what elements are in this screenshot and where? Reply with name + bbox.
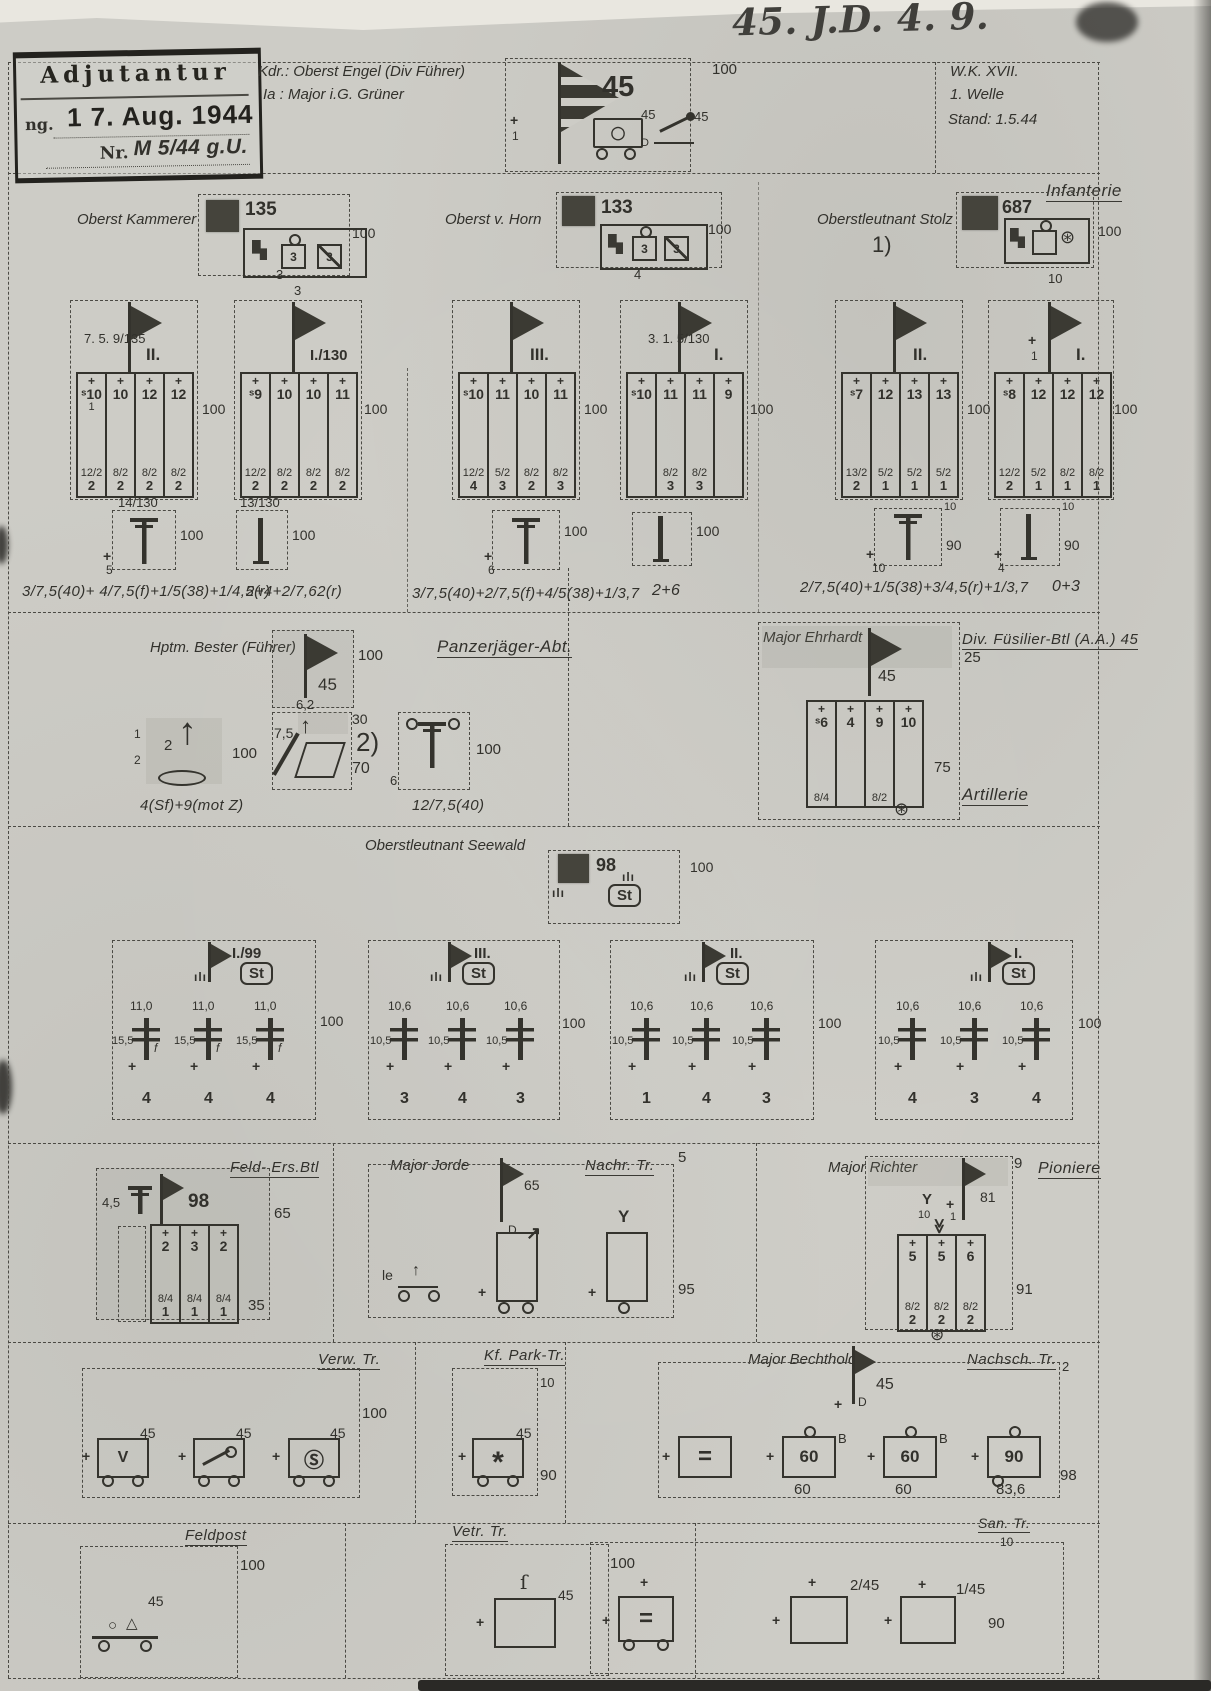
antitank-arrow-icon: ↑ <box>300 714 311 738</box>
unit-number: 81 <box>980 1190 996 1205</box>
column-top: ˢ6 <box>815 714 828 730</box>
frame-line <box>8 1678 1100 1679</box>
regiment-commander: Oberstleutnant Seewald <box>365 838 525 854</box>
column-frac: 8/2 <box>1060 468 1075 478</box>
cell-value: 3 <box>673 242 680 256</box>
cross-icon <box>499 376 506 386</box>
wagon-number: 45 <box>148 1594 164 1609</box>
cross-icon <box>866 546 874 562</box>
unit-strength: 100 <box>232 746 257 762</box>
wagon-glyph: Ⓢ <box>304 1444 324 1473</box>
cross-icon <box>557 376 564 386</box>
pennant-icon <box>855 1350 876 1374</box>
cross-icon <box>640 1574 648 1590</box>
group-strength: 100 <box>562 1016 585 1031</box>
group-title: I. <box>1014 946 1022 962</box>
cross-icon <box>444 1058 452 1074</box>
column-top: 12 <box>1031 386 1047 402</box>
unit-column: ˢ713/22 <box>843 374 870 496</box>
cross-icon <box>272 1448 280 1464</box>
staff-marks-icon <box>430 968 443 986</box>
group-title: III. <box>474 946 491 962</box>
cross-icon <box>510 112 518 128</box>
column-bottom: 3 <box>696 478 703 493</box>
unit-column: 128/22 <box>163 374 192 496</box>
cross-icon <box>310 376 317 386</box>
cross-icon <box>882 376 889 386</box>
cross-icon <box>772 1612 780 1628</box>
frame-line <box>333 1143 334 1342</box>
column-top: 13 <box>907 386 923 402</box>
gun-calibre: 10,6 <box>446 1000 469 1013</box>
gun-count: 4 <box>142 1090 151 1107</box>
artillery-gun-icon <box>448 1018 476 1060</box>
unit-column: 135/21 <box>928 374 957 496</box>
cross-icon <box>88 376 95 386</box>
gun-sub-calibre: 10,5 <box>370 1036 391 1048</box>
cross-icon <box>146 376 153 386</box>
gun-calibre: 10,6 <box>958 1000 981 1013</box>
battalion-strength: 100 <box>364 402 387 417</box>
gun-count: 3 <box>762 1090 771 1107</box>
battalion-sup-label: 7. 5. 9/135 <box>84 332 145 346</box>
veterinaer-unit-box <box>494 1598 556 1648</box>
pioniere-columns: 58/22 58/22 68/22 <box>897 1234 986 1332</box>
battalion-top-note: 3 <box>294 284 301 298</box>
wagon-glyph: V <box>118 1449 129 1467</box>
column-frac: 8/2 <box>142 468 157 478</box>
cross-icon <box>688 1058 696 1074</box>
battalion-strength: 100 <box>584 402 607 417</box>
column-bottom: 2 <box>1006 478 1013 493</box>
gun-sub-calibre: 10,5 <box>612 1036 633 1048</box>
cross-icon <box>884 1612 892 1628</box>
gun-count: 3 <box>970 1090 979 1107</box>
column-top: ˢ7 <box>850 386 863 402</box>
unit-column: 118/23 <box>545 374 574 496</box>
frame-line <box>8 1143 1100 1144</box>
column-frac: 8/2 <box>113 468 128 478</box>
column-bottom: 2 <box>88 478 95 493</box>
cross-icon <box>190 1058 198 1074</box>
gun-sub-calibre: 10,5 <box>1002 1036 1023 1048</box>
artillery-gun-icon <box>960 1018 988 1060</box>
cross-icon <box>938 1238 945 1248</box>
cross-icon <box>588 1284 596 1300</box>
cross-icon <box>994 546 1002 562</box>
truck-number: 45 <box>641 108 655 122</box>
column-frac: 8/4 <box>814 793 829 803</box>
regiment-commander: Oberstleutnant Stolz <box>817 212 953 228</box>
frame-line <box>758 182 759 612</box>
column-top: ˢ10 <box>463 386 484 402</box>
sanitaet-unit-box <box>900 1596 956 1644</box>
unit-number: 98 <box>188 1192 209 1213</box>
corner-wk: W.K. XVII. <box>950 64 1019 80</box>
weapons-annotation: 2+4+2/7,62(r) <box>246 584 342 600</box>
unit-column: 10 <box>893 702 922 806</box>
wheel-icon <box>498 1302 510 1314</box>
column-frac: 12/2 <box>999 468 1020 478</box>
support-strength: 100 <box>180 528 203 543</box>
section-title-feldpost: Feldpost <box>185 1528 247 1546</box>
supply-unit-box: 60 <box>883 1436 937 1478</box>
small-note: 10 <box>918 1210 930 1222</box>
infantry-gun-icon <box>126 518 162 564</box>
sanitaet-wagon-icon: = <box>618 1596 674 1642</box>
flag-shade <box>868 1158 1008 1186</box>
wagon-number: 45 <box>236 1426 252 1441</box>
cross-icon <box>1035 376 1042 386</box>
cross-icon <box>946 1196 954 1212</box>
column-top: 11 <box>663 386 678 402</box>
column-bottom: 2 <box>909 1312 916 1327</box>
group-strength: 100 <box>320 1014 343 1029</box>
weapons-annotation: 2+6 <box>652 582 680 599</box>
werkstatt-wagon-icon: * <box>472 1438 524 1478</box>
cross-icon <box>940 376 947 386</box>
oval-base-icon <box>158 770 206 786</box>
wheel-icon: ⊛ <box>1060 228 1075 247</box>
unit-right-note: 70 <box>352 760 370 777</box>
infantry-gun-icon <box>508 518 544 564</box>
unit-column: 128/21 <box>1081 374 1110 496</box>
cross-icon <box>191 1228 198 1238</box>
adjutantur-stamp: Adjutantur ng. 1 7. Aug. 1944 Nr. M 5/44… <box>13 48 263 184</box>
group-strength: 100 <box>1078 1016 1101 1031</box>
column-frac: 5/2 <box>907 468 922 478</box>
support-note: 6 <box>488 564 495 577</box>
unit-column: 125/21 <box>1023 374 1052 496</box>
unit-column: 58/22 <box>926 1236 955 1330</box>
frame-line <box>8 826 1100 827</box>
unit-top-note: 6,2 <box>296 698 314 712</box>
gun-count: 4 <box>702 1090 711 1107</box>
trailer-line <box>398 1286 438 1288</box>
trailer-arrow-icon: ↑ <box>412 1262 420 1279</box>
unit-column: 38/41 <box>179 1226 208 1322</box>
hook-icon: ſ <box>520 1572 527 1594</box>
fuesilier-columns: ˢ68/4 4 98/2 10 <box>806 700 924 808</box>
cross-icon <box>502 1058 510 1074</box>
scan-bottom-band <box>418 1680 1211 1691</box>
gun-sub-calibre: 10,5 <box>486 1036 507 1048</box>
staff-marks-icon <box>970 968 983 986</box>
posthorn-wagon-icon: ○ △ <box>92 1612 162 1644</box>
gun-calibre: 10,6 <box>750 1000 773 1013</box>
support-strength: 90 <box>946 538 962 553</box>
unit-strength: 75 <box>934 760 951 776</box>
gun-count: 4 <box>204 1090 213 1107</box>
column-top: ˢ8 <box>1003 386 1016 402</box>
staff-cell: 3 <box>281 244 306 269</box>
cross-icon <box>484 548 492 564</box>
unit-sup: B <box>939 1432 948 1446</box>
column-top: 12 <box>1089 386 1105 402</box>
unit-num: 2 <box>164 738 172 754</box>
group-title: I./99 <box>232 946 261 962</box>
cross-icon <box>1006 376 1013 386</box>
gun-calibre: 10,6 <box>504 1000 527 1013</box>
battalion-top-note: 1 <box>1031 350 1038 363</box>
unit-sup: B <box>838 1432 847 1446</box>
unit-label: 2/45 <box>850 1578 879 1594</box>
weapons-annotation: 3/7,5(40)+ 4/7,5(f)+1/5(38)+1/4,5(r) <box>22 584 270 600</box>
division-number: 45 <box>602 72 634 103</box>
empty-column <box>118 1226 146 1322</box>
cross-icon <box>178 1448 186 1464</box>
cross-icon <box>909 1238 916 1248</box>
column-top: 6 <box>967 1248 975 1264</box>
pennant-icon <box>871 632 902 666</box>
unit-column: 118/22 <box>327 374 356 496</box>
scan-artifact <box>0 1060 12 1114</box>
cross-icon <box>478 1284 486 1300</box>
battalion-title: I. <box>1076 346 1085 364</box>
cross-icon <box>853 376 860 386</box>
column-frac: 8/2 <box>553 468 568 478</box>
wheel-icon <box>406 718 418 730</box>
unit-number: 45 <box>876 1376 894 1393</box>
section-title-kfpark: Kf. Park-Tr. <box>484 1348 565 1366</box>
wheel-icon: ⊛ <box>930 1326 944 1344</box>
battalion-strength: 100 <box>750 402 773 417</box>
battalion-title: I. <box>714 346 723 364</box>
abteilung-number: 45 <box>318 676 337 694</box>
supply-unit-box: = <box>678 1436 732 1478</box>
column-frac: 8/2 <box>872 793 887 803</box>
artillery-gun-icon <box>898 1018 926 1060</box>
handwritten-division-note: 45. J.D. 4. 9. <box>732 0 990 43</box>
column-bottom: 2 <box>117 478 124 493</box>
unit-column: 125/21 <box>870 374 899 496</box>
gun-count: 4 <box>908 1090 917 1107</box>
column-top: 9 <box>876 714 884 730</box>
column-icon <box>1026 514 1031 560</box>
unit-left-note: 6 <box>390 774 397 788</box>
gun-calibre: 10,6 <box>896 1000 919 1013</box>
stamp-line <box>46 164 250 169</box>
column-top: 12 <box>142 386 158 402</box>
column-top: 10 <box>901 714 917 730</box>
column-bottom: 1 <box>1064 478 1071 493</box>
unit-strength: 100 <box>476 742 501 758</box>
regiment-below-note: 10 <box>1048 272 1062 286</box>
support-strength: 90 <box>1064 538 1080 553</box>
unit-column: 128/21 <box>1052 374 1081 496</box>
cross-icon <box>1093 376 1100 386</box>
column-bottom: 3 <box>499 478 506 493</box>
cross-icon <box>82 1448 90 1464</box>
unit-number: 65 <box>524 1178 540 1193</box>
regiment-number: 135 <box>245 200 277 221</box>
artillery-gun-icon <box>632 1018 660 1060</box>
pennant-icon <box>163 1176 184 1200</box>
commander-line-ia: Ia : Major i.G. Grüner <box>263 87 404 103</box>
infantry-gun-icon <box>890 514 926 560</box>
wheel-icon <box>98 1640 110 1652</box>
cross-icon <box>117 376 124 386</box>
unit-column: ˢ912/22 <box>242 374 269 496</box>
staff-cell <box>1032 230 1057 255</box>
cell-value: 3 <box>326 250 333 264</box>
cross-icon <box>748 1058 756 1074</box>
group-title: II. <box>730 946 743 962</box>
wheel-icon <box>428 1290 440 1302</box>
unit-column: 28/41 <box>208 1226 237 1322</box>
column-top: 12 <box>171 386 187 402</box>
unit-left-note: 1 <box>134 728 141 741</box>
cross-icon <box>696 376 703 386</box>
cross-icon <box>847 704 854 714</box>
infantry-gun-icon <box>414 722 450 768</box>
unit-column: 58/22 <box>899 1236 926 1330</box>
cell-value: 3 <box>641 242 648 256</box>
unit-column: 118/23 <box>655 374 684 496</box>
corner-stand: Stand: 1.5.44 <box>948 112 1037 128</box>
weapons-annotation: 4(Sf)+9(mot Z) <box>140 798 244 814</box>
battalion-title: II. <box>913 346 927 364</box>
column-top: 12 <box>878 386 894 402</box>
frame-line <box>8 1523 1100 1524</box>
gun-count: 3 <box>516 1090 525 1107</box>
unit-column: ˢ812/22 <box>996 374 1023 496</box>
frame-line <box>565 1342 566 1523</box>
artillery-gun-icon <box>752 1018 780 1060</box>
cross-icon <box>386 1058 394 1074</box>
car-baseline <box>654 142 694 144</box>
section-title-veterinaer: Vetr. Tr. <box>452 1524 508 1542</box>
torn-paper-edge <box>0 0 1211 30</box>
unit-strength: 90 <box>988 1616 1005 1632</box>
unit-strength: 98 <box>1060 1468 1077 1484</box>
regiment-flag-icon <box>558 854 589 883</box>
stamp-title: Adjutantur <box>40 60 231 88</box>
battalion-title: II. <box>146 346 160 364</box>
unit-right-note: 30 <box>352 712 368 727</box>
radio-arrow-icon: ↗ <box>526 1224 541 1243</box>
cross-icon <box>1064 376 1071 386</box>
frame-line <box>345 1523 346 1678</box>
unit-column: 115/23 <box>487 374 516 496</box>
cross-icon <box>667 376 674 386</box>
gun-sub-calibre: 10,5 <box>428 1036 449 1048</box>
wagon-number: 45 <box>140 1426 156 1441</box>
stamp-nr-value: M 5/44 g.U. <box>133 136 248 161</box>
unit-strength: 91 <box>1016 1282 1033 1298</box>
unit-strength: 90 <box>540 1468 557 1484</box>
truck-sub: D <box>641 138 649 150</box>
column-bottom: 1 <box>882 478 889 493</box>
column-bottom: 2 <box>175 478 182 493</box>
schlaechterei-wagon-icon: Ⓢ <box>288 1438 340 1478</box>
cross-icon <box>602 1612 610 1628</box>
pennant-icon <box>307 636 338 670</box>
unit-column: 28/41 <box>152 1226 179 1322</box>
cross-icon <box>458 1448 466 1464</box>
gun-sub-calibre: 10,5 <box>878 1036 899 1048</box>
pennant-icon <box>211 944 232 968</box>
column-top: 10 <box>113 386 129 402</box>
stamp-nr-prefix: Nr. <box>100 144 129 163</box>
unit-column: 118/23 <box>684 374 713 496</box>
cross-icon <box>638 376 645 386</box>
gun-count: 4 <box>266 1090 275 1107</box>
column-frac: 12/2 <box>81 468 102 478</box>
column-bottom: 2 <box>146 478 153 493</box>
section-title-artillerie: Artillerie <box>962 786 1028 806</box>
tonnage-label: 90 <box>1005 1447 1024 1467</box>
column-frac: 5/2 <box>878 468 893 478</box>
unit-label: 1/45 <box>956 1582 985 1598</box>
posthorn-circle: ○ <box>108 1618 117 1634</box>
unit-column: ˢ68/4 <box>808 702 835 806</box>
cell-value: 3 <box>290 250 297 264</box>
column-top: 11 <box>495 386 510 402</box>
section-title-sanitaet: San. Tr. <box>978 1516 1030 1533</box>
support-note: 10 <box>872 562 885 575</box>
abteilung-strength: 100 <box>358 648 383 664</box>
corner-note: 10 <box>540 1376 554 1390</box>
regiment-strength: 100 <box>690 860 713 875</box>
car-number: 45 <box>694 110 708 124</box>
wheel-icon <box>596 148 608 160</box>
gun-calibre: 10,6 <box>1020 1000 1043 1013</box>
scan-artifact <box>1076 2 1138 42</box>
column-top: ˢ10 <box>81 386 102 402</box>
cross-icon <box>894 1058 902 1074</box>
column-bottom: 1 <box>1093 478 1100 493</box>
staff-cell: 3 <box>317 244 342 269</box>
pennant-icon <box>503 1162 524 1186</box>
column-bottom: 1 <box>940 478 947 493</box>
verpflegung-wagon-icon: V <box>97 1438 149 1478</box>
verwaltung-box <box>82 1368 360 1498</box>
tonnage-label: 60 <box>901 1447 920 1467</box>
weapons-annotation: 0+3 <box>1052 578 1080 595</box>
column-top: 13 <box>936 386 952 402</box>
wagon-baseline <box>92 1636 158 1639</box>
battalion-columns: ˢ912/22 108/22 108/22 118/22 <box>240 372 358 498</box>
phone-unit-box <box>606 1232 648 1302</box>
battalion-strength: 100 <box>1114 402 1137 417</box>
phone-fork-icon: Y <box>922 1192 932 1208</box>
staff-cell: 3 <box>632 236 657 261</box>
unit-column: 108/22 <box>269 374 298 496</box>
gun-calibre: 11,0 <box>254 1000 276 1013</box>
gun-calibre: 10,6 <box>690 1000 713 1013</box>
supply-unit-box: 60 <box>782 1436 836 1478</box>
regiment-flag-icon <box>206 200 239 232</box>
gun-sub-calibre: 10,5 <box>940 1036 961 1048</box>
pennant-icon <box>513 306 544 340</box>
cross-icon <box>175 376 182 386</box>
gun-calibre: 11,0 <box>192 1000 214 1013</box>
cross-icon <box>918 1576 926 1592</box>
unit-column: 135/21 <box>899 374 928 496</box>
gun-f-mark: f <box>216 1042 219 1055</box>
column-mid-note: 1 <box>88 402 94 412</box>
regiment-flag-icon <box>562 196 595 226</box>
column-frac: 8/2 <box>663 468 678 478</box>
cross-icon <box>725 376 732 386</box>
column-frac: 8/2 <box>335 468 350 478</box>
section-title-pioniere: Pioniere <box>1038 1160 1101 1179</box>
column-bottom: 2 <box>967 1312 974 1327</box>
cross-icon <box>103 548 111 564</box>
cross-icon <box>967 1238 974 1248</box>
battalion-columns: ˢ812/22 125/21 128/21 128/21 <box>994 372 1112 498</box>
